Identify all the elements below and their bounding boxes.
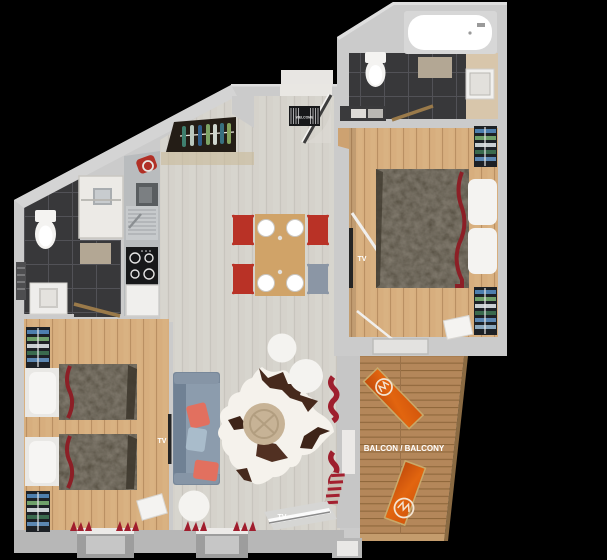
svg-text:BALCON / BALCONY: BALCON / BALCONY xyxy=(364,444,445,453)
svg-text:WELCOME: WELCOME xyxy=(296,116,314,120)
svg-text:TV: TV xyxy=(278,514,287,521)
svg-text:TV: TV xyxy=(358,256,367,263)
svg-text:TV: TV xyxy=(158,438,167,445)
